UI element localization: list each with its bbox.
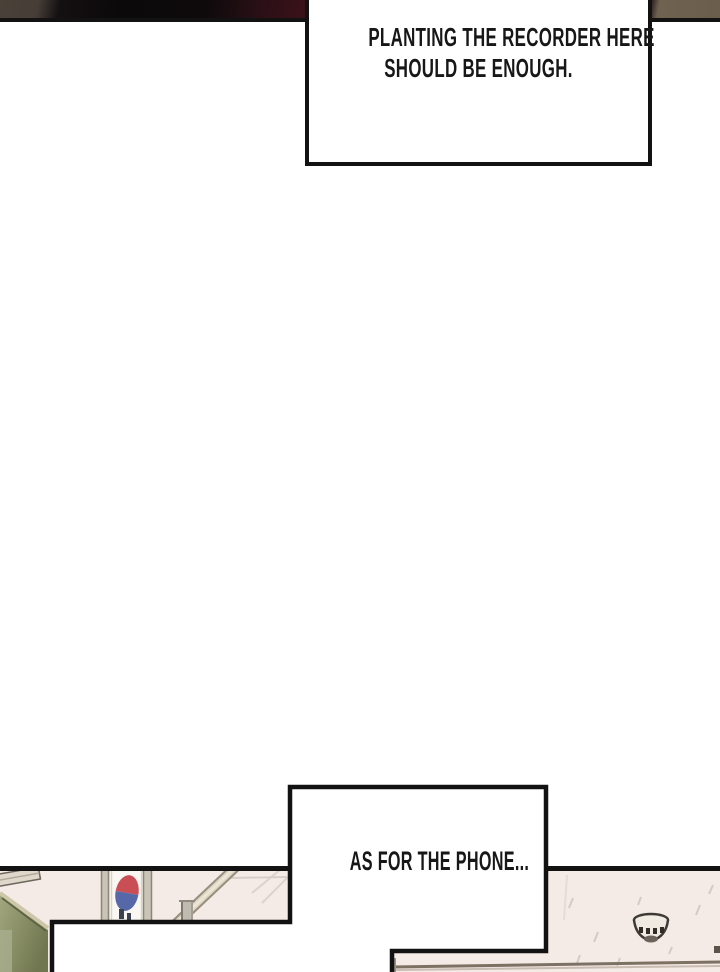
speech-line: PLANTING THE RECORDER HERE — [368, 22, 588, 53]
speech-bubble-outline — [52, 787, 546, 972]
speech-line: SHOULD BE ENOUGH. — [368, 53, 588, 84]
speech-bubble-recorder: PLANTING THE RECORDER HERE SHOULD BE ENO… — [305, 0, 652, 166]
comic-page: PLANTING THE RECORDER HERE SHOULD BE ENO… — [0, 0, 720, 972]
speech-text-phone: AS FOR THE PHONE... — [290, 845, 546, 877]
speech-text-recorder: PLANTING THE RECORDER HERE SHOULD BE ENO… — [309, 22, 648, 84]
speech-line: AS FOR THE PHONE... — [350, 845, 529, 877]
